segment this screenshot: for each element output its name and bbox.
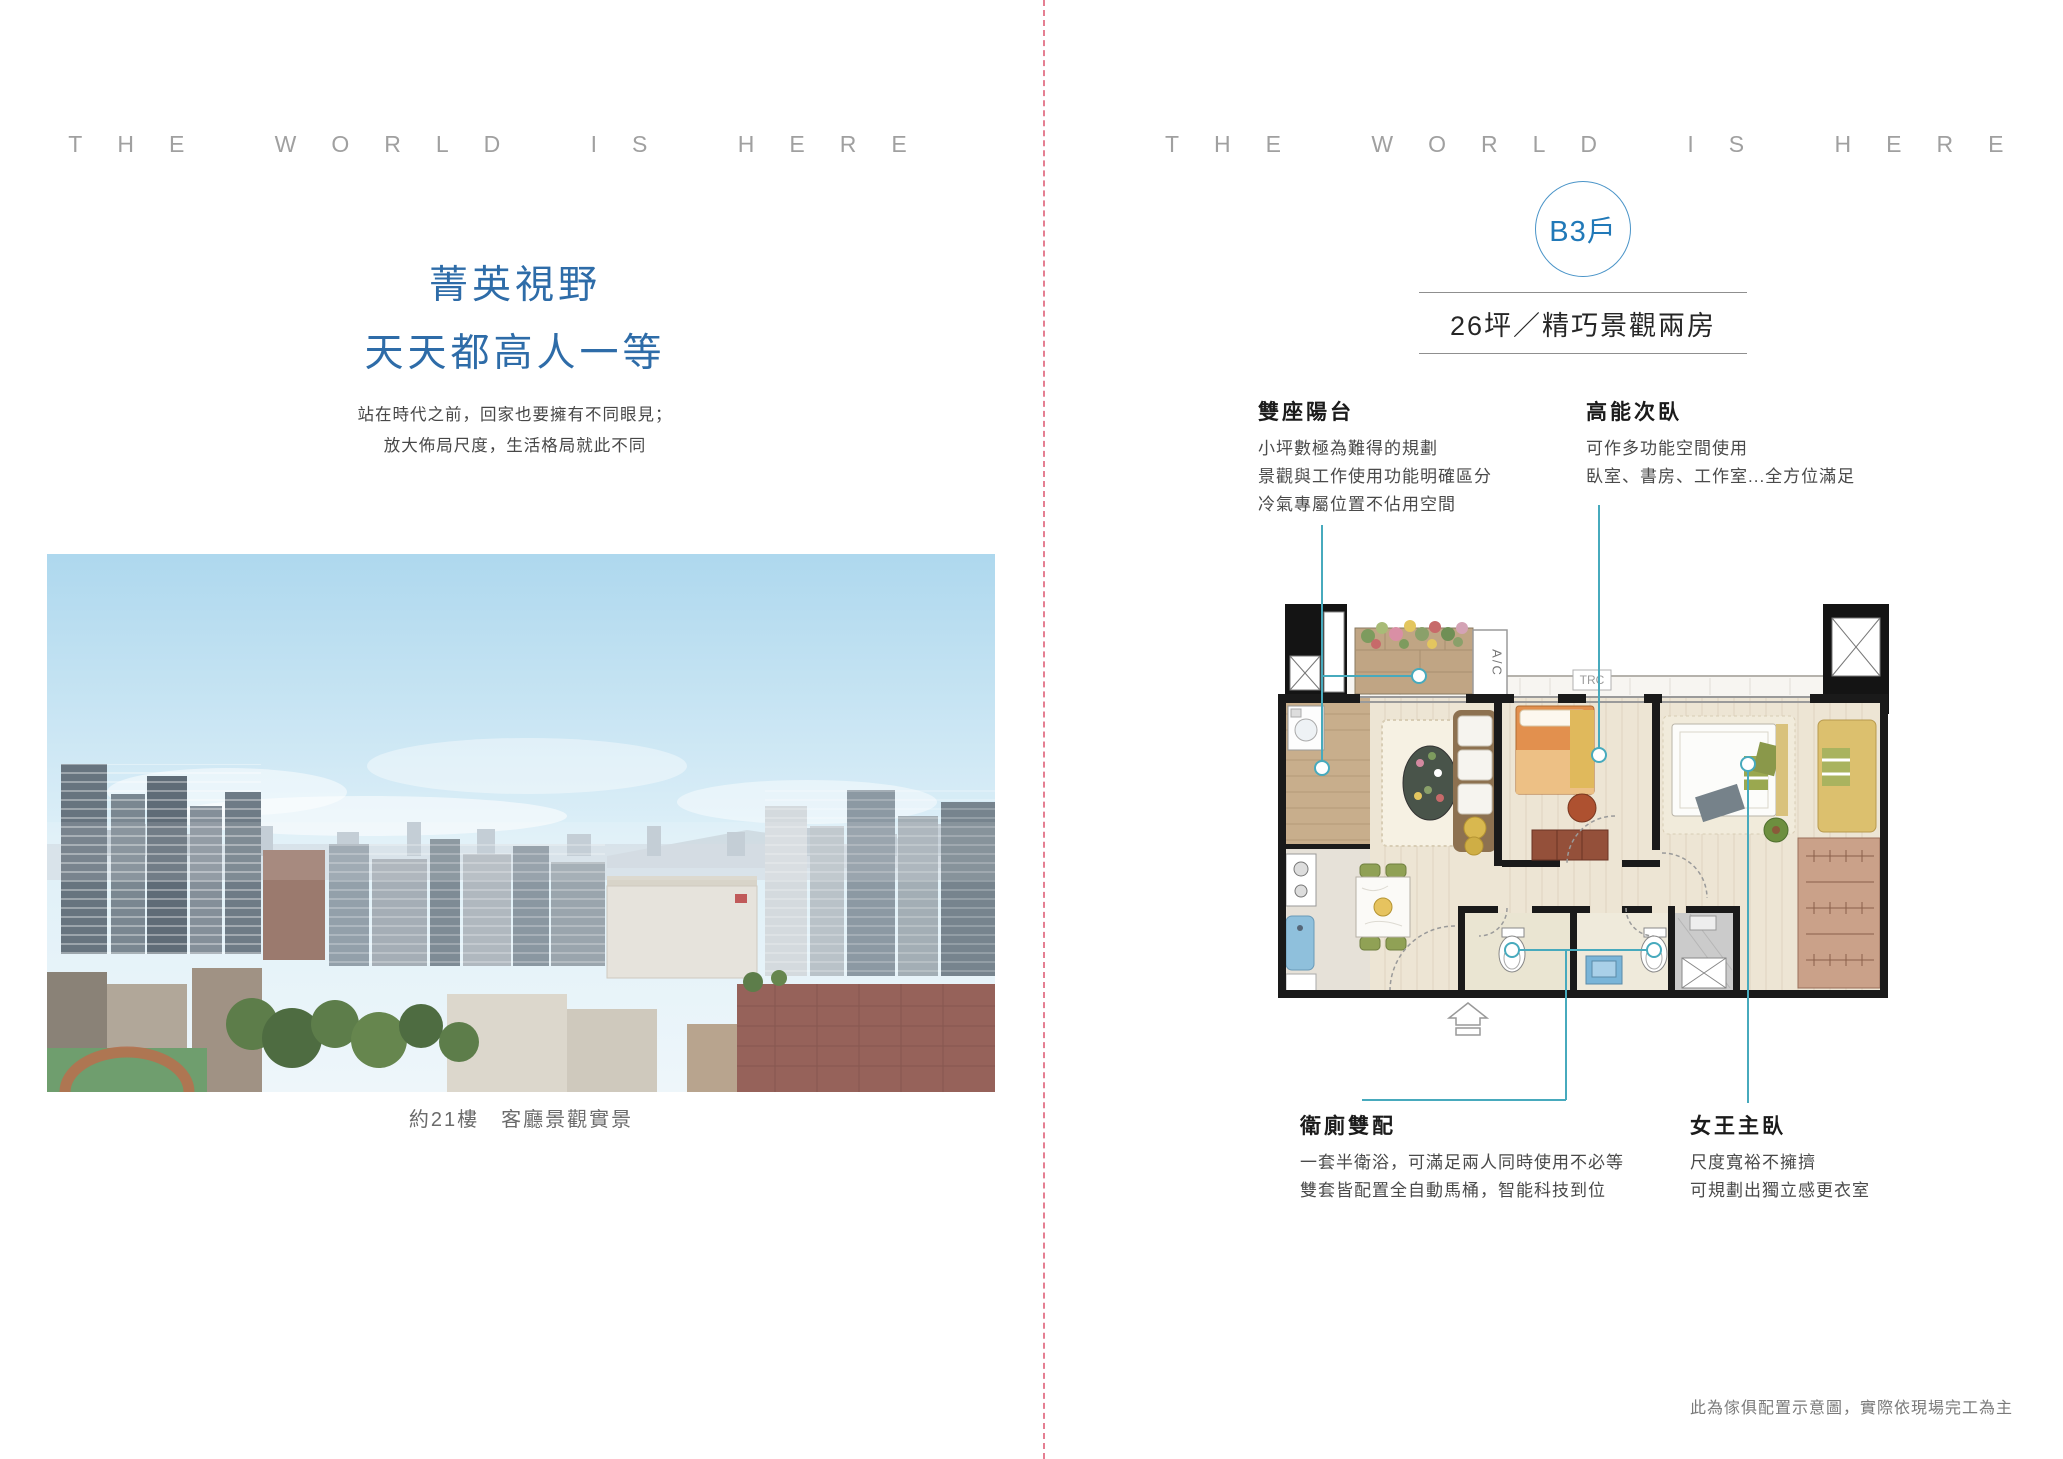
main-title-line-1: 菁英視野 (60, 254, 970, 310)
unit-title: 26坪／精巧景觀兩房 (1450, 304, 1716, 343)
disclaimer-text: 此為傢俱配置示意圖，實際依現場完工為主 (1690, 1394, 2013, 1418)
annotation-line: 景觀與工作使用功能明確區分 (1258, 463, 1492, 491)
annotation-title: 雙座陽台 (1258, 396, 1492, 426)
unit-title-block: 26坪／精巧景觀兩房 (1419, 292, 1747, 354)
subtitle-line-2: 放大佈局尺度，生活格局就此不同 (60, 432, 970, 456)
annotation-double-bathroom: 衛廁雙配 一套半衛浴，可滿足兩人同時使用不必等 雙套皆配置全自動馬桶，智能科技到… (1300, 1110, 1624, 1205)
annotation-second-bedroom: 高能次臥 可作多功能空間使用 臥室、書房、工作室...全方位滿足 (1586, 396, 1855, 491)
annotation-line: 一套半衛浴，可滿足兩人同時使用不必等 (1300, 1149, 1624, 1177)
unit-badge-label: B3戶 (1549, 208, 1616, 250)
annotation-title: 女王主臥 (1690, 1110, 1870, 1140)
annotation-title: 高能次臥 (1586, 396, 1855, 426)
brochure-spread: THE WORLD IS HERE 菁英視野 天天都高人一等 站在時代之前，回家… (0, 0, 2063, 1459)
ac-label: A/C (1490, 649, 1505, 677)
annotation-line: 小坪數極為難得的規劃 (1258, 435, 1492, 463)
annotation-master-bedroom: 女王主臥 尺度寬裕不擁擠 可規劃出獨立感更衣室 (1690, 1110, 1870, 1205)
photo-caption: 約21樓 客廳景觀實景 (47, 1103, 995, 1132)
annotation-line: 可作多功能空間使用 (1586, 435, 1855, 463)
floorplan-illustration: A/C TRC (1270, 598, 1902, 1013)
annotation-double-balcony: 雙座陽台 小坪數極為難得的規劃 景觀與工作使用功能明確區分 冷氣專屬位置不佔用空… (1258, 396, 1492, 519)
annotation-line: 臥室、書房、工作室...全方位滿足 (1586, 463, 1855, 491)
page-divider (1043, 0, 1045, 1459)
annotation-line: 冷氣專屬位置不佔用空間 (1258, 491, 1492, 519)
unit-badge: B3戶 (1535, 181, 1631, 277)
left-page-header: THE WORLD IS HERE (60, 131, 950, 158)
subtitle-line-1: 站在時代之前，回家也要擁有不同眼見； (60, 401, 970, 425)
main-title-line-2: 天天都高人一等 (60, 322, 970, 378)
annotation-line: 可規劃出獨立感更衣室 (1690, 1177, 1870, 1205)
annotation-line: 尺度寬裕不擁擠 (1690, 1149, 1870, 1177)
trc-label: TRC (1580, 673, 1605, 687)
annotation-title: 衛廁雙配 (1300, 1110, 1624, 1140)
cityscape-photo (47, 554, 995, 1092)
right-page-header: THE WORLD IS HERE (1165, 131, 2005, 158)
annotation-line: 雙套皆配置全自動馬桶，智能科技到位 (1300, 1177, 1624, 1205)
